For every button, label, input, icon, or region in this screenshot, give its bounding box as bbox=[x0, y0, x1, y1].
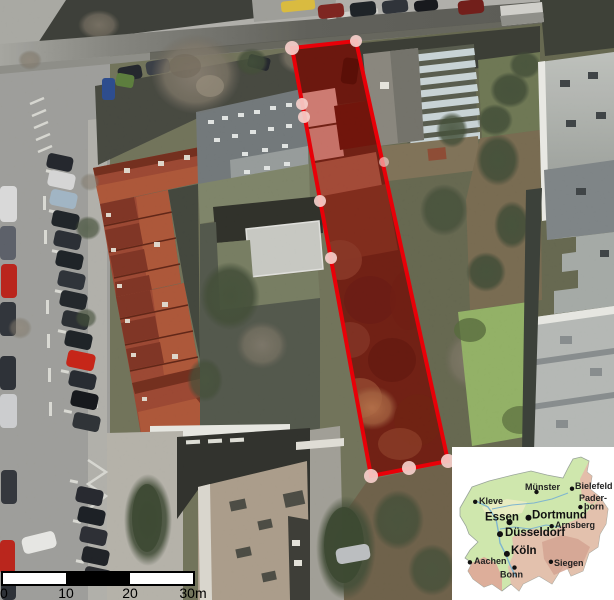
svg-text:Siegen: Siegen bbox=[554, 558, 584, 568]
svg-text:Münster: Münster bbox=[525, 482, 561, 492]
svg-text:Kleve: Kleve bbox=[479, 496, 503, 506]
svg-text:20: 20 bbox=[122, 585, 138, 600]
svg-text:Bielefeld: Bielefeld bbox=[575, 481, 613, 491]
svg-text:0: 0 bbox=[0, 585, 8, 600]
svg-text:born: born bbox=[584, 502, 604, 512]
svg-text:10: 10 bbox=[58, 585, 74, 600]
svg-text:30m: 30m bbox=[179, 585, 206, 600]
svg-text:Aachen: Aachen bbox=[474, 556, 507, 566]
svg-text:Essen: Essen bbox=[485, 512, 519, 524]
svg-text:Düsseldorf: Düsseldorf bbox=[505, 527, 565, 539]
svg-text:Köln: Köln bbox=[511, 545, 537, 557]
svg-text:Bonn: Bonn bbox=[500, 570, 523, 580]
